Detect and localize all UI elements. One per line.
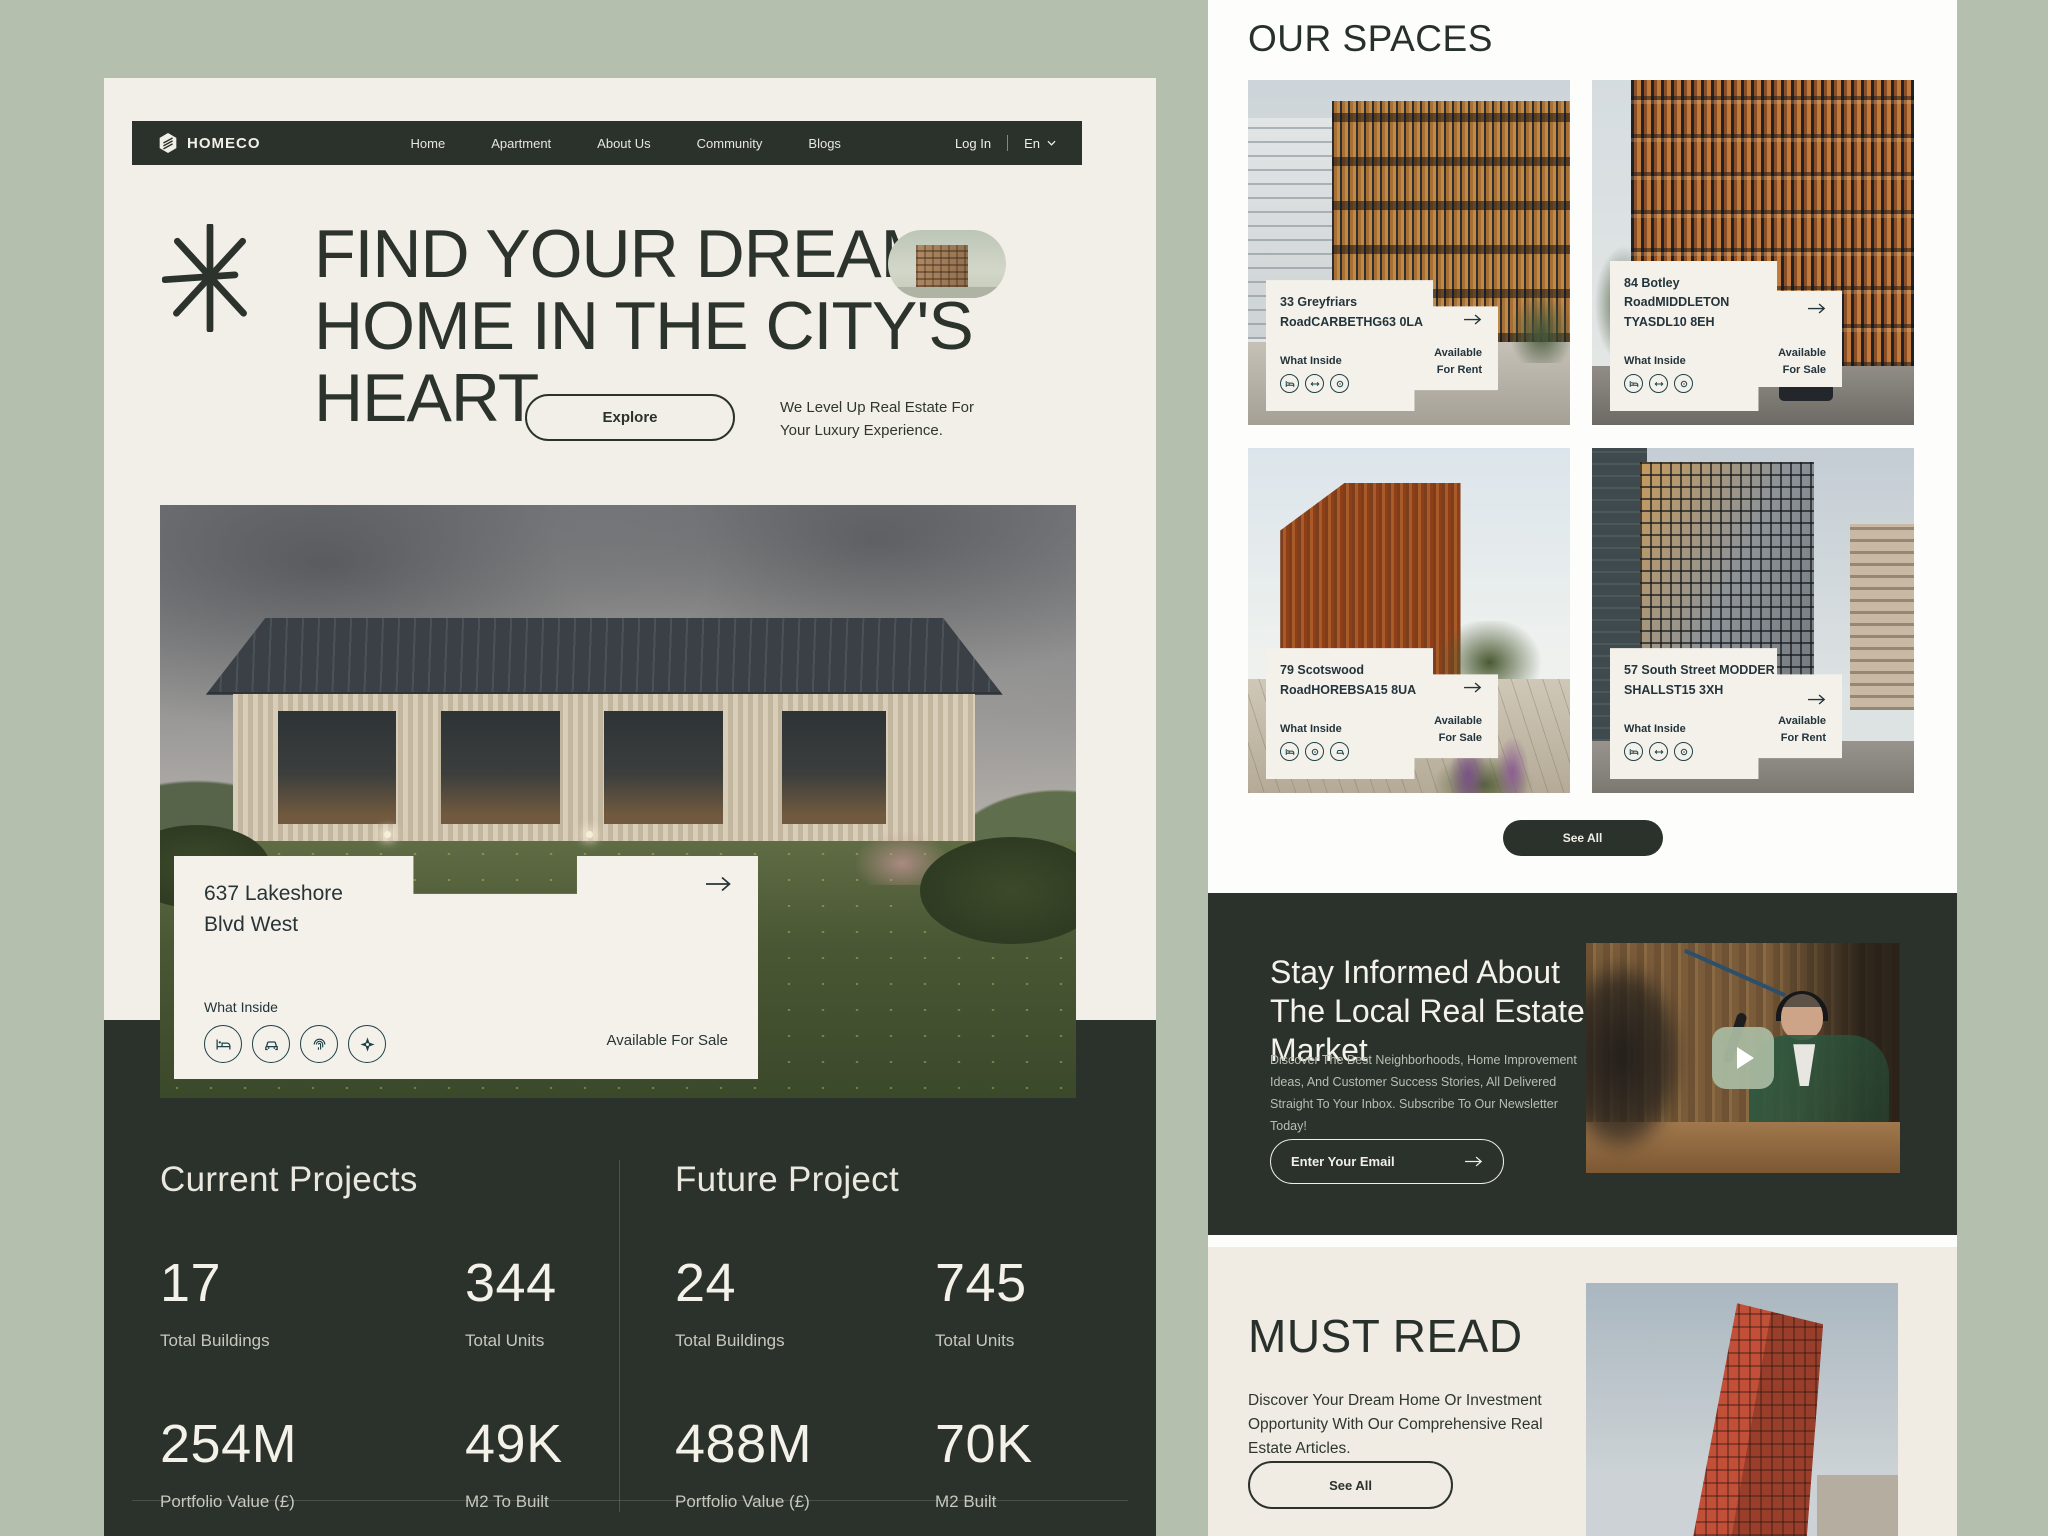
right-panel: OUR SPACES 33 Greyfriars RoadCARBETHG63 …	[1208, 0, 1957, 1536]
availability-status: Available For Rent	[1760, 713, 1826, 747]
car-icon	[1330, 742, 1349, 761]
stat-value: 70K	[935, 1413, 1100, 1475]
must-read-title: MUST READ	[1248, 1309, 1523, 1363]
explore-button[interactable]: Explore	[525, 394, 735, 441]
stat-cell: 254M Portfolio Value (£)	[160, 1413, 465, 1512]
what-inside-label: What Inside	[1280, 355, 1349, 367]
hero-house-image: 637 Lakeshore Blvd West What Inside	[160, 505, 1076, 1098]
see-all-spaces-button[interactable]: See All	[1503, 820, 1663, 856]
homeco-logo-icon	[158, 132, 178, 154]
nav-link-about-us[interactable]: About Us	[597, 136, 650, 151]
brand-name: HOMECO	[187, 135, 261, 152]
amenity-icons	[1624, 374, 1693, 393]
stat-label: M2 To Built	[465, 1492, 579, 1512]
future-project-title: Future Project	[675, 1160, 1100, 1200]
language-selector[interactable]: En	[1024, 136, 1056, 151]
chevron-down-icon	[1047, 140, 1056, 146]
bed-icon	[1624, 374, 1643, 393]
house-window	[782, 711, 886, 824]
availability-status: Available For Sale	[1416, 713, 1482, 747]
stat-value: 254M	[160, 1413, 465, 1475]
stat-value: 24	[675, 1252, 935, 1314]
property-card[interactable]: 33 Greyfriars RoadCARBETHG63 0LA What In…	[1248, 80, 1570, 425]
stat-cell: 17 Total Buildings	[160, 1252, 465, 1351]
availability-status: Available For Sale	[607, 1032, 728, 1049]
gear-icon	[1674, 374, 1693, 393]
what-inside-label: What Inside	[1624, 355, 1693, 367]
hero-title-line-1: FIND YOUR DREAM	[314, 218, 973, 290]
stat-value: 17	[160, 1252, 465, 1314]
amenity-icons	[1624, 742, 1693, 761]
hero-building-thumbnail	[888, 230, 1006, 298]
stat-value: 49K	[465, 1413, 579, 1475]
play-button[interactable]	[1712, 1027, 1774, 1089]
arrow-right-icon[interactable]	[1808, 692, 1826, 710]
nav-link-home[interactable]: Home	[411, 136, 446, 151]
bed-icon	[1280, 374, 1299, 393]
must-read-section: MUST READ Discover Your Dream Home Or In…	[1208, 1247, 1957, 1536]
amenity-icons	[1280, 742, 1349, 761]
bed-icon	[1624, 742, 1643, 761]
navbar-divider	[1007, 135, 1008, 151]
arrow-right-icon[interactable]	[1464, 680, 1482, 698]
arrow-right-icon[interactable]	[1464, 312, 1482, 330]
podcast-video-thumbnail	[1586, 943, 1900, 1173]
nav-link-community[interactable]: Community	[697, 136, 763, 151]
property-card[interactable]: 79 Scotswood RoadHOREBSA15 8UA What Insi…	[1248, 448, 1570, 793]
availability-status: Available For Sale	[1760, 345, 1826, 379]
stat-label: M2 Built	[935, 1492, 1100, 1512]
stat-cell: 344 Total Units	[465, 1252, 579, 1351]
brand[interactable]: HOMECO	[158, 132, 261, 154]
house-roof	[206, 618, 1003, 695]
featured-property-address: 637 Lakeshore Blvd West	[204, 878, 384, 940]
property-address: 57 South Street MODDER SHALLST15 3XH	[1624, 661, 1794, 700]
stat-label: Total Units	[935, 1331, 1100, 1351]
thumbnail-ground-shape	[888, 287, 1006, 298]
hero-tagline: We Level Up Real Estate For Your Luxury …	[780, 396, 1000, 442]
future-project-group: Future Project 24 Total Buildings 745 To…	[620, 1160, 1100, 1512]
stat-label: Total Units	[465, 1331, 579, 1351]
what-inside-label: What Inside	[204, 999, 278, 1015]
property-address: 79 Scotswood RoadHOREBSA15 8UA	[1280, 661, 1432, 700]
hero-title-line-2: HOME IN THE CITY'S	[314, 290, 973, 362]
article-image	[1586, 1283, 1898, 1536]
stat-label: Portfolio Value (£)	[160, 1492, 465, 1512]
nav-links: Home Apartment About Us Community Blogs	[411, 136, 841, 151]
email-subscribe-field[interactable]	[1270, 1139, 1504, 1184]
house-window	[441, 711, 560, 824]
house-window	[604, 711, 723, 824]
landing-page: HOMECO Home Apartment About Us Community…	[104, 78, 1156, 1536]
availability-status: Available For Rent	[1416, 345, 1482, 379]
navbar: HOMECO Home Apartment About Us Community…	[132, 121, 1082, 165]
bed-icon	[204, 1025, 242, 1063]
play-icon	[1737, 1047, 1754, 1069]
property-address: 84 Botley RoadMIDDLETON TYASDL10 8EH	[1624, 274, 1776, 332]
property-card[interactable]: 57 South Street MODDER SHALLST15 3XH Wha…	[1592, 448, 1914, 793]
arrows-icon	[1649, 742, 1668, 761]
image-shape	[1499, 287, 1570, 363]
gear-icon	[1674, 742, 1693, 761]
our-spaces-title: OUR SPACES	[1248, 18, 1493, 60]
stat-value: 745	[935, 1252, 1100, 1314]
newsletter-body: Discover The Best Neighborhoods, Home Im…	[1270, 1049, 1588, 1137]
language-label: En	[1024, 136, 1040, 151]
stat-cell: 70K M2 Built	[935, 1413, 1100, 1512]
fingerprint-icon	[300, 1025, 338, 1063]
must-read-body: Discover Your Dream Home Or Investment O…	[1248, 1389, 1583, 1461]
person-shape	[1781, 994, 1823, 1040]
image-shape	[1850, 524, 1914, 710]
amenity-icons	[1280, 374, 1349, 393]
navbar-right: Log In En	[955, 135, 1056, 151]
nav-link-blogs[interactable]: Blogs	[808, 136, 841, 151]
login-button[interactable]: Log In	[955, 136, 991, 151]
arrows-icon	[1649, 374, 1668, 393]
stat-label: Total Buildings	[160, 1331, 465, 1351]
bed-icon	[1280, 742, 1299, 761]
property-card[interactable]: 84 Botley RoadMIDDLETON TYASDL10 8EH Wha…	[1592, 80, 1914, 425]
arrows-icon	[1305, 374, 1324, 393]
what-inside-label: What Inside	[1280, 723, 1349, 735]
email-input[interactable]	[1291, 1154, 1455, 1169]
page-canvas: HOMECO Home Apartment About Us Community…	[0, 0, 2048, 1536]
stat-cell: 745 Total Units	[935, 1252, 1100, 1351]
stat-label: Portfolio Value (£)	[675, 1492, 935, 1512]
image-shape	[1817, 1475, 1898, 1536]
current-projects-group: Current Projects 17 Total Buildings 344 …	[160, 1160, 620, 1512]
house-window	[278, 711, 397, 824]
see-all-articles-button[interactable]: See All	[1248, 1461, 1453, 1509]
property-address: 33 Greyfriars RoadCARBETHG63 0LA	[1280, 293, 1432, 332]
asterisk-star-icon	[162, 224, 258, 336]
stat-value: 488M	[675, 1413, 935, 1475]
arrow-right-icon[interactable]	[1808, 301, 1826, 319]
amenity-icons	[204, 1025, 386, 1063]
property-cards-grid: 33 Greyfriars RoadCARBETHG63 0LA What In…	[1248, 80, 1914, 793]
newsletter-section: Stay Informed About The Local Real Estat…	[1208, 893, 1957, 1235]
gear-icon	[1305, 742, 1324, 761]
stat-label: Total Buildings	[675, 1331, 935, 1351]
stat-cell: 49K M2 To Built	[465, 1413, 579, 1512]
stat-value: 344	[465, 1252, 579, 1314]
car-icon	[252, 1025, 290, 1063]
gear-icon	[1330, 374, 1349, 393]
compass-icon	[348, 1025, 386, 1063]
footer-divider	[132, 1500, 1128, 1501]
submit-arrow-icon[interactable]	[1465, 1156, 1483, 1167]
what-inside-label: What Inside	[1624, 723, 1693, 735]
stat-cell: 24 Total Buildings	[675, 1252, 935, 1351]
current-projects-title: Current Projects	[160, 1160, 579, 1200]
arrow-right-icon[interactable]	[706, 876, 732, 897]
stat-cell: 488M Portfolio Value (£)	[675, 1413, 935, 1512]
foreground-blur-shape	[1586, 943, 1718, 1173]
nav-link-apartment[interactable]: Apartment	[491, 136, 551, 151]
